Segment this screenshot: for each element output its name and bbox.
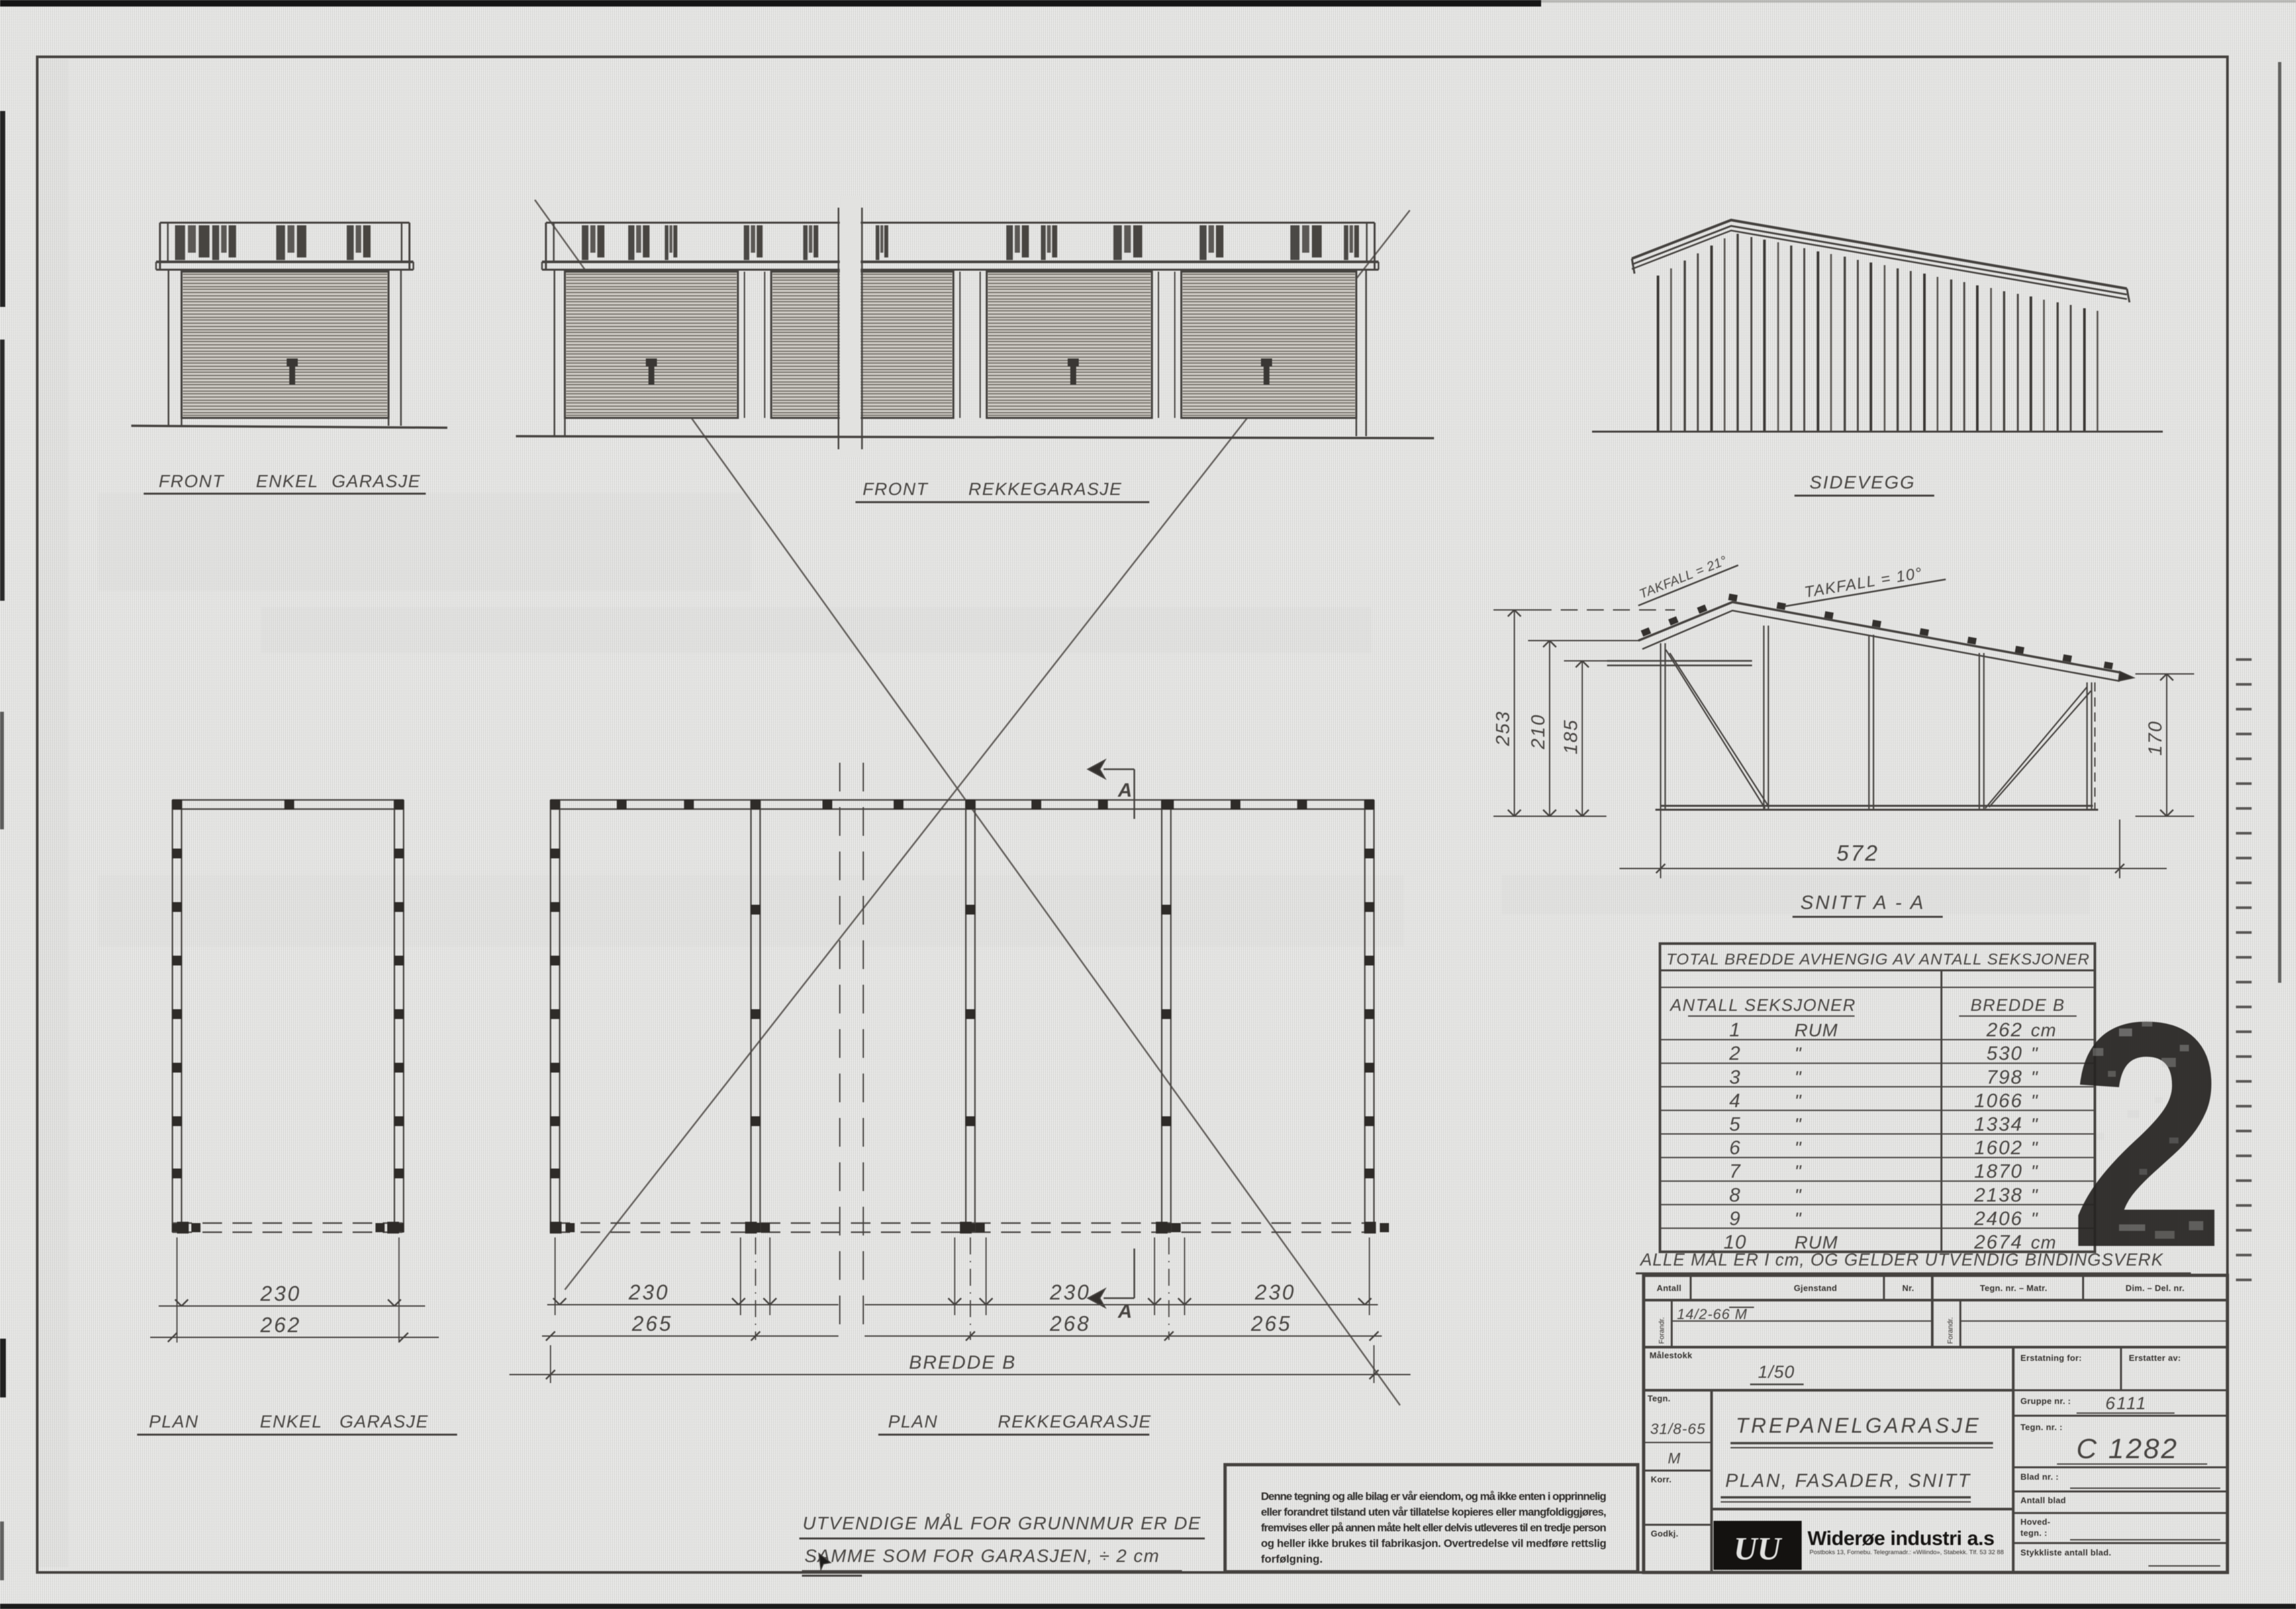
svg-text:REKKEGARASJE: REKKEGARASJE xyxy=(998,1412,1152,1431)
svg-text:253: 253 xyxy=(1493,710,1514,746)
svg-text:eller forandret tilstand uten: eller forandret tilstand uten vår tillat… xyxy=(1261,1506,1606,1518)
svg-text:": " xyxy=(1794,1091,1802,1111)
svg-text:og heller ikke brukes til fabr: og heller ikke brukes til fabrikasjon. O… xyxy=(1261,1537,1606,1550)
svg-text:530: 530 xyxy=(1986,1043,2023,1064)
svg-text:": " xyxy=(2031,1185,2038,1205)
svg-text:TREPANELGARASJE: TREPANELGARASJE xyxy=(1736,1414,1981,1437)
svg-text:C 1282: C 1282 xyxy=(2077,1433,2179,1465)
svg-text:265: 265 xyxy=(631,1312,673,1335)
svg-text:230: 230 xyxy=(260,1282,301,1305)
svg-text:PLAN: PLAN xyxy=(888,1412,938,1431)
svg-text:SIDEVEGG: SIDEVEGG xyxy=(1810,472,1915,492)
svg-text:Stykkliste antall blad.: Stykkliste antall blad. xyxy=(2020,1548,2111,1557)
svg-text:2: 2 xyxy=(1729,1043,1741,1064)
svg-text:forfølgning.: forfølgning. xyxy=(1261,1553,1322,1565)
svg-text:230: 230 xyxy=(1254,1281,1296,1304)
svg-text:4: 4 xyxy=(1729,1090,1741,1111)
svg-text:ENKEL: ENKEL xyxy=(260,1412,323,1431)
svg-text:Widerøe industri a.s: Widerøe industri a.s xyxy=(1808,1527,1994,1550)
svg-text:GARASJE: GARASJE xyxy=(340,1412,429,1431)
svg-text:": " xyxy=(2031,1162,2038,1182)
svg-text:262: 262 xyxy=(260,1313,301,1337)
svg-text:": " xyxy=(2031,1115,2038,1135)
svg-text:230: 230 xyxy=(1049,1281,1091,1304)
svg-text:1: 1 xyxy=(1729,1019,1741,1041)
svg-text:": " xyxy=(1794,1209,1802,1229)
svg-text:cm: cm xyxy=(2031,1020,2056,1040)
svg-text:Antall: Antall xyxy=(1657,1283,1682,1293)
svg-text:268: 268 xyxy=(1049,1312,1091,1335)
svg-text:PLAN: PLAN xyxy=(149,1412,199,1431)
svg-text:PLAN, FASADER, SNITT: PLAN, FASADER, SNITT xyxy=(1725,1471,1971,1491)
svg-text:FRONT: FRONT xyxy=(159,471,225,491)
svg-text:1602: 1602 xyxy=(1974,1138,2023,1159)
svg-text:6: 6 xyxy=(1729,1138,1741,1159)
svg-text:UTVENDIGE MÅL FOR GRUNNMUR: UTVENDIGE MÅL FOR GRUNNMUR ER DE xyxy=(803,1513,1202,1533)
svg-text:SNITT A - A: SNITT A - A xyxy=(1800,892,1925,914)
svg-text:": " xyxy=(1794,1067,1802,1087)
svg-text:ENKEL: ENKEL xyxy=(256,471,319,491)
svg-text:ANTALL SEKSJONER: ANTALL SEKSJONER xyxy=(1669,995,1857,1015)
svg-text:": " xyxy=(2031,1209,2038,1229)
svg-text:tegn. :: tegn. : xyxy=(2020,1528,2047,1538)
svg-text:": " xyxy=(2031,1067,2038,1087)
svg-text:Dim. – Del. nr.: Dim. – Del. nr. xyxy=(2126,1283,2184,1293)
svg-text:Hoved-: Hoved- xyxy=(2020,1517,2050,1527)
svg-text:TOTAL BREDDE AVHENGIG AV ANTAL: TOTAL BREDDE AVHENGIG AV ANTALL SEKSJONE… xyxy=(1666,951,2090,968)
svg-text:Antall blad: Antall blad xyxy=(2020,1495,2066,1505)
svg-text:6111: 6111 xyxy=(2105,1394,2147,1413)
svg-text:Gruppe nr. :: Gruppe nr. : xyxy=(2020,1396,2071,1406)
svg-text:REKKEGARASJE: REKKEGARASJE xyxy=(968,479,1123,499)
svg-text:2406: 2406 xyxy=(1973,1208,2023,1230)
svg-text:Godkj.: Godkj. xyxy=(1651,1529,1678,1538)
svg-text:TAKFALL = 21°: TAKFALL = 21° xyxy=(1637,553,1729,601)
svg-text:3: 3 xyxy=(1729,1066,1741,1088)
svg-text:Forandr.: Forandr. xyxy=(1658,1317,1666,1344)
svg-text:": " xyxy=(1794,1115,1802,1135)
svg-text:FRONT: FRONT xyxy=(863,479,929,499)
svg-text:9: 9 xyxy=(1729,1208,1741,1230)
svg-text:Erstatter av:: Erstatter av: xyxy=(2129,1353,2181,1363)
svg-text:Erstatning for:: Erstatning for: xyxy=(2020,1353,2082,1363)
svg-text:14/2-66 M: 14/2-66 M xyxy=(1677,1306,1747,1322)
svg-text:M: M xyxy=(1668,1450,1681,1467)
svg-text:SAMME SOM FOR GARASJEN, ÷ 2: SAMME SOM FOR GARASJEN, ÷ 2 cm xyxy=(805,1546,1160,1566)
svg-text:Denne tegning og alle bilag er: Denne tegning og alle bilag er vår eiend… xyxy=(1261,1490,1606,1503)
svg-text:170: 170 xyxy=(2145,720,2166,756)
svg-text:Forandr.: Forandr. xyxy=(1947,1317,1954,1344)
svg-text:RUM: RUM xyxy=(1794,1020,1838,1040)
svg-text:Nr.: Nr. xyxy=(1902,1283,1914,1293)
svg-text:262: 262 xyxy=(1986,1019,2023,1041)
svg-text:": " xyxy=(1794,1138,1802,1158)
svg-text:BREDDE B: BREDDE B xyxy=(909,1352,1016,1373)
svg-text:8: 8 xyxy=(1729,1185,1741,1206)
svg-text:185: 185 xyxy=(1561,719,1582,754)
svg-text:1870: 1870 xyxy=(1974,1161,2023,1183)
svg-text:265: 265 xyxy=(1251,1312,1292,1335)
svg-text:BREDDE B: BREDDE B xyxy=(1971,995,2065,1015)
svg-text:Målestokk: Målestokk xyxy=(1650,1350,1693,1360)
svg-text:fremvises eller på annen måte: fremvises eller på annen måte helt eller… xyxy=(1261,1521,1606,1534)
svg-text:Tegn.: Tegn. xyxy=(1648,1394,1670,1403)
svg-text:572: 572 xyxy=(1836,841,1879,866)
svg-text:A: A xyxy=(1117,780,1132,801)
svg-text:Tegn. nr. – Matr.: Tegn. nr. – Matr. xyxy=(1980,1283,2047,1293)
svg-text:5: 5 xyxy=(1729,1114,1741,1136)
svg-text:": " xyxy=(1794,1043,1802,1064)
svg-text:A: A xyxy=(1117,1301,1132,1322)
svg-text:": " xyxy=(1794,1185,1802,1205)
svg-text:31/8-65: 31/8-65 xyxy=(1650,1420,1706,1437)
svg-text:Gjenstand: Gjenstand xyxy=(1794,1283,1837,1293)
svg-text:230: 230 xyxy=(628,1281,669,1304)
svg-text:Blad nr. :: Blad nr. : xyxy=(2020,1472,2059,1482)
svg-text:1/50: 1/50 xyxy=(1758,1362,1795,1382)
svg-text:798: 798 xyxy=(1986,1066,2023,1088)
svg-text:1066: 1066 xyxy=(1974,1090,2023,1111)
svg-text:": " xyxy=(2031,1043,2038,1064)
svg-text:210: 210 xyxy=(1528,714,1549,750)
svg-text:": " xyxy=(1794,1162,1802,1182)
svg-text:TAKFALL = 10°: TAKFALL = 10° xyxy=(1803,564,1924,601)
svg-text:7: 7 xyxy=(1729,1161,1741,1183)
svg-text:2138: 2138 xyxy=(1973,1185,2023,1206)
svg-text:1334: 1334 xyxy=(1974,1114,2023,1136)
svg-text:Korr.: Korr. xyxy=(1651,1474,1672,1484)
svg-text:GARASJE: GARASJE xyxy=(332,471,421,491)
svg-text:Tegn. nr. :: Tegn. nr. : xyxy=(2020,1422,2062,1432)
svg-text:UU: UU xyxy=(1734,1530,1783,1567)
svg-text:Postboks 13, Fornebu. Telegram: Postboks 13, Fornebu. Telegramadr.: «Wil… xyxy=(1810,1549,2004,1556)
svg-text:2: 2 xyxy=(2069,955,2226,1314)
svg-text:": " xyxy=(2031,1091,2038,1111)
svg-text:": " xyxy=(2031,1138,2038,1158)
